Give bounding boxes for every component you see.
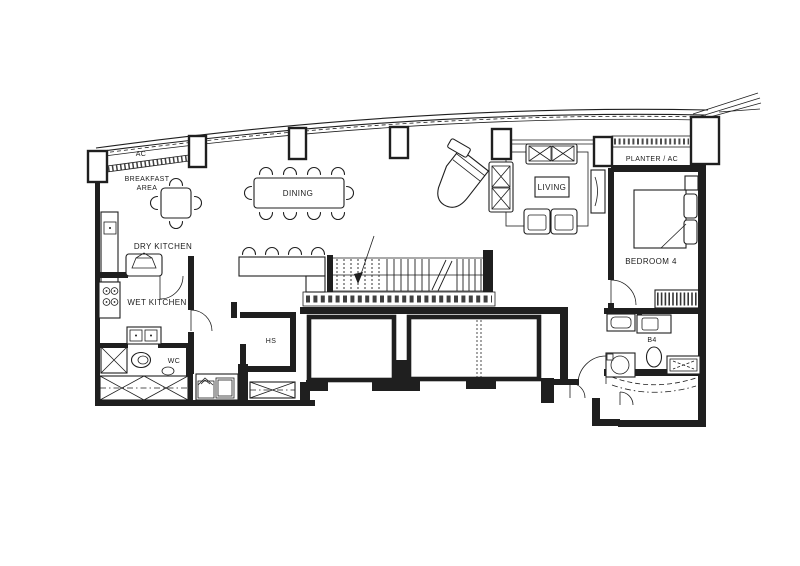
vanity-sinks — [607, 314, 671, 333]
shower — [101, 347, 127, 373]
column — [189, 136, 206, 167]
wet-kitchen-sinks — [100, 327, 191, 348]
bedroom4 — [608, 168, 700, 313]
label-b4: B4 — [647, 337, 656, 344]
label-planter-ac: PLANTER / AC — [626, 156, 678, 163]
planter-xbox-strip — [100, 376, 188, 400]
floor-plan-canvas: AC BREAKFAST AREA DRY KITCHEN WET KITCHE… — [0, 0, 800, 566]
stair-balustrade — [303, 292, 495, 306]
foyer-door — [620, 392, 633, 405]
door-wet-kitchen — [160, 276, 183, 299]
ac-ledge — [107, 155, 189, 172]
column — [289, 128, 306, 159]
structural-columns — [88, 117, 719, 182]
label-hs: HS — [266, 338, 277, 345]
bar-stools — [243, 248, 325, 255]
breakfast-area — [151, 179, 202, 229]
column — [594, 137, 612, 166]
label-breakfast-1: BREAKFAST — [125, 176, 170, 183]
stove — [99, 282, 120, 318]
label-dry-kitchen: DRY KITCHEN — [134, 242, 192, 251]
staircase — [300, 236, 568, 314]
label-dining: DINING — [283, 189, 313, 198]
shower-basin — [606, 353, 635, 377]
bar-counter — [239, 248, 325, 293]
column — [390, 127, 408, 158]
grand-piano — [427, 149, 489, 214]
bedroom-door — [611, 280, 636, 305]
lift-shafts — [306, 317, 579, 403]
floor-drain — [162, 367, 174, 375]
corridor-arcs — [612, 377, 696, 392]
armchairs — [524, 209, 577, 234]
laundry-area — [100, 374, 238, 400]
bathtub — [667, 356, 700, 374]
side-door — [570, 383, 585, 398]
label-ac: AC — [136, 151, 147, 158]
laundry-fixtures — [196, 374, 238, 400]
breakfast-table — [161, 188, 191, 218]
living-area — [427, 138, 605, 234]
hs-xbox — [250, 382, 295, 398]
planter-strip — [612, 136, 691, 147]
column — [88, 151, 107, 182]
column — [492, 129, 511, 159]
column — [691, 117, 719, 164]
label-breakfast-2: AREA — [137, 185, 158, 192]
bed — [634, 190, 697, 248]
toilet-b4 — [647, 347, 662, 367]
stair-arrow — [354, 236, 374, 284]
kitchen-area — [99, 212, 212, 374]
lift-shaft-right — [409, 317, 539, 379]
nightstand — [685, 176, 698, 190]
kitchen-counter — [101, 212, 118, 282]
wardrobe — [655, 290, 700, 308]
label-wc: WC — [168, 358, 180, 365]
sofa-left — [489, 162, 513, 212]
lift-shaft-left — [309, 317, 394, 380]
dry-kitchen-sink — [126, 253, 162, 276]
console-cabinet — [591, 170, 605, 213]
stair-south-wall — [300, 307, 568, 314]
label-wet-kitchen: WET KITCHEN — [127, 298, 186, 307]
label-living: LIVING — [538, 183, 567, 192]
floor-plan-drawing: AC BREAKFAST AREA DRY KITCHEN WET KITCHE… — [0, 0, 800, 566]
entry-door — [578, 356, 606, 384]
sofa-top — [526, 144, 577, 164]
door-kitchen-hall — [191, 310, 212, 331]
label-bedroom4: BEDROOM 4 — [625, 257, 677, 266]
toilet — [132, 353, 151, 368]
